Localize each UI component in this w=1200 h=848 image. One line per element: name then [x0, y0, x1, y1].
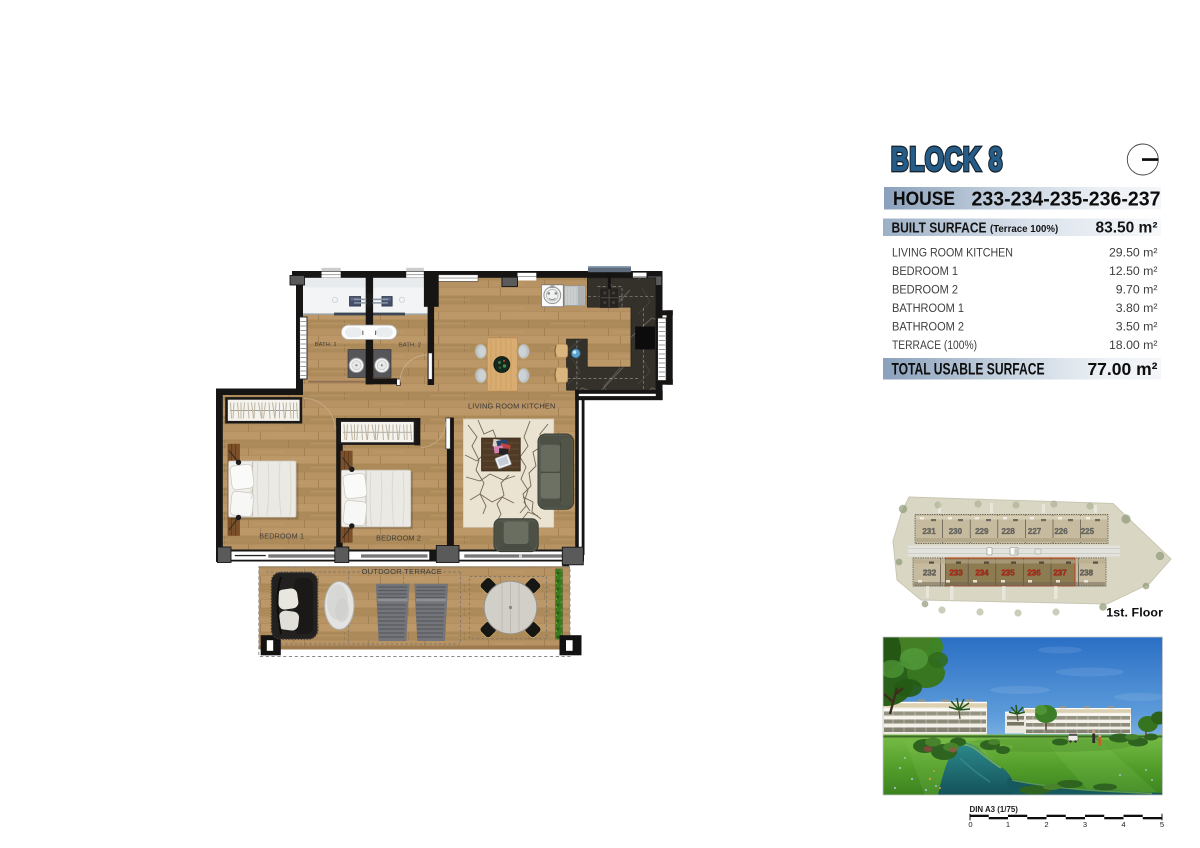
svg-text:233-234-235-236-237: 233-234-235-236-237 [972, 187, 1161, 210]
svg-text:230: 230 [949, 527, 963, 536]
svg-text:LIVING ROOM KITCHEN: LIVING ROOM KITCHEN [892, 246, 1013, 260]
svg-text:DIN A3 (1/75): DIN A3 (1/75) [970, 805, 1019, 814]
svg-text:233: 233 [949, 569, 963, 578]
svg-text:77.00 m²: 77.00 m² [1087, 359, 1157, 379]
svg-text:BATHROOM 1: BATHROOM 1 [892, 301, 964, 315]
svg-text:5: 5 [1160, 820, 1164, 829]
svg-text:1st. Floor: 1st. Floor [1106, 606, 1163, 620]
svg-text:1: 1 [1006, 820, 1010, 829]
svg-text:3.50 m²: 3.50 m² [1116, 320, 1158, 334]
svg-text:228: 228 [1002, 527, 1016, 536]
svg-text:234: 234 [975, 569, 989, 578]
svg-text:BEDROOM 1: BEDROOM 1 [892, 264, 958, 278]
svg-text:(Terrace 100%): (Terrace 100%) [990, 224, 1058, 235]
svg-text:227: 227 [1028, 527, 1042, 536]
svg-text:BATH. 1: BATH. 1 [315, 342, 337, 348]
svg-text:BATHROOM 2: BATHROOM 2 [892, 320, 964, 334]
svg-text:TERRACE (100%): TERRACE (100%) [892, 338, 977, 352]
svg-text:LIVING ROOM KITCHEN: LIVING ROOM KITCHEN [468, 402, 556, 411]
svg-text:BUILT SURFACE: BUILT SURFACE [892, 220, 987, 236]
svg-text:BEDROOM 2: BEDROOM 2 [892, 283, 958, 297]
svg-text:225: 225 [1081, 527, 1095, 536]
svg-text:236: 236 [1027, 569, 1041, 578]
svg-text:2: 2 [1044, 820, 1048, 829]
svg-text:BEDROOM 2: BEDROOM 2 [376, 534, 421, 543]
svg-text:83.50 m²: 83.50 m² [1095, 220, 1157, 237]
svg-text:9.70 m²: 9.70 m² [1116, 283, 1158, 297]
svg-text:BLOCK 8: BLOCK 8 [891, 142, 1003, 179]
svg-text:3.80 m²: 3.80 m² [1116, 301, 1158, 315]
svg-text:4: 4 [1121, 820, 1125, 829]
svg-text:BEDROOM 1: BEDROOM 1 [259, 532, 304, 541]
svg-text:231: 231 [922, 527, 936, 536]
svg-text:BATH. 2: BATH. 2 [399, 342, 421, 348]
svg-text:TOTAL USABLE SURFACE: TOTAL USABLE SURFACE [892, 360, 1045, 379]
svg-text:3: 3 [1083, 820, 1087, 829]
svg-text:238: 238 [1080, 569, 1094, 578]
svg-text:HOUSE: HOUSE [893, 188, 955, 210]
svg-text:229: 229 [975, 527, 989, 536]
svg-text:232: 232 [923, 569, 937, 578]
svg-text:29.50 m²: 29.50 m² [1109, 246, 1158, 260]
svg-text:237: 237 [1053, 569, 1067, 578]
svg-text:18.00 m²: 18.00 m² [1109, 338, 1158, 352]
svg-text:0: 0 [968, 820, 972, 829]
svg-text:12.50 m²: 12.50 m² [1109, 264, 1158, 278]
svg-text:235: 235 [1001, 569, 1015, 578]
svg-text:OUTDOOR TERRACE: OUTDOOR TERRACE [361, 567, 442, 576]
svg-text:226: 226 [1054, 527, 1068, 536]
